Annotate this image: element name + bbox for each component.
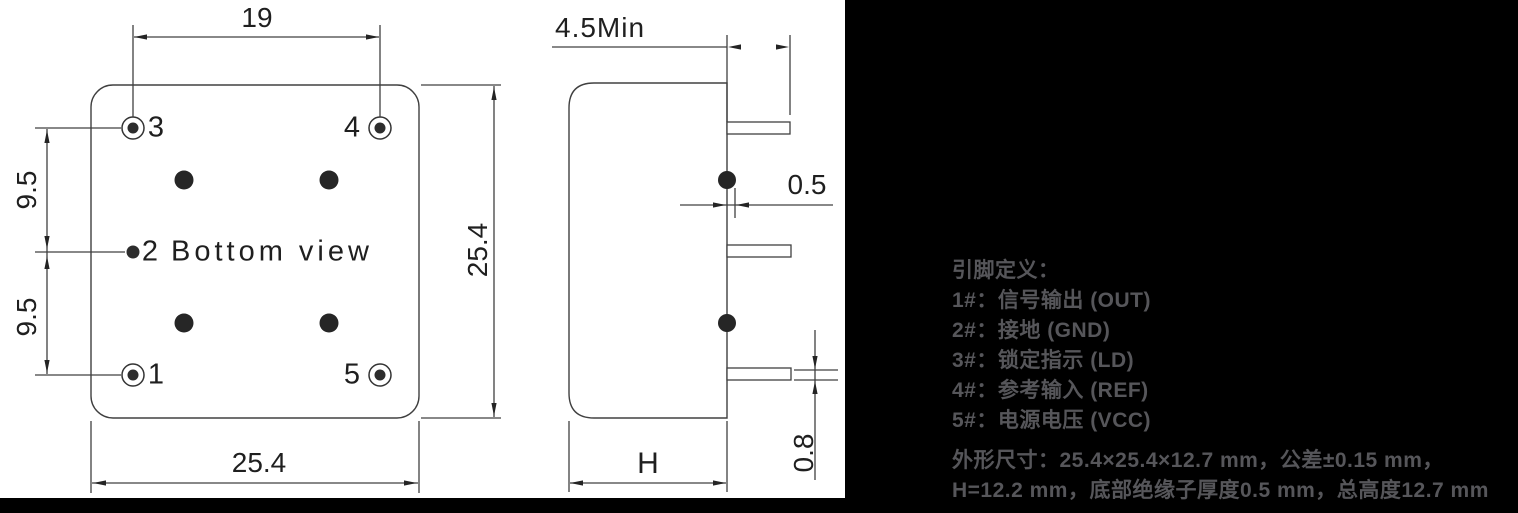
info-panel: 引脚定义： 1#：信号输出 (OUT) 2#：接地 (GND) 3#：锁定指示 …	[952, 256, 1489, 506]
dim-label-lead-diameter: 0.8	[788, 434, 820, 473]
bottom-view-title: Bottom view	[171, 236, 373, 269]
dim-label-lead-length: 4.5Min	[555, 12, 645, 44]
outline-note-line2: H=12.2 mm，底部绝缘子厚度0.5 mm，总高度12.7 mm	[952, 476, 1489, 506]
dim-label-body-height: 25.4	[462, 223, 494, 278]
dim-label-pitch-upper: 9.5	[11, 171, 43, 210]
pin-definition-2: 2#：接地 (GND)	[952, 316, 1489, 346]
side-view-body	[569, 83, 727, 418]
pin-label-5: 5	[344, 359, 360, 392]
dim-label-pin-span: 19	[241, 2, 272, 34]
pin-label-3: 3	[148, 112, 164, 145]
pin-label-1: 1	[148, 359, 164, 392]
dim-label-insulator-offset: 0.5	[788, 169, 827, 201]
pin-2-dot	[127, 246, 140, 259]
package-outline-drawing: 19 9.5 9.5 25.4 25.4 3 4 2 1 5 Bottom vi…	[0, 0, 1518, 513]
pin-definition-title: 引脚定义：	[952, 256, 1489, 286]
pin-label-2: 2	[142, 236, 158, 269]
dim-label-pitch-lower: 9.5	[11, 298, 43, 337]
pin-definition-1: 1#：信号输出 (OUT)	[952, 286, 1489, 316]
pin-definition-3: 3#：锁定指示 (LD)	[952, 346, 1489, 376]
side-view-leads	[727, 122, 791, 380]
pin-definition-4: 4#：参考输入 (REF)	[952, 376, 1489, 406]
pin-definition-5: 5#：电源电压 (VCC)	[952, 406, 1489, 436]
dim-label-body-width: 25.4	[232, 447, 287, 479]
dim-label-body-thickness: H	[637, 447, 659, 481]
outline-note-line1: 外形尺寸：25.4×25.4×12.7 mm，公差±0.15 mm，	[952, 446, 1489, 476]
pin-label-4: 4	[344, 112, 360, 145]
bottom-black-bar	[0, 498, 845, 513]
